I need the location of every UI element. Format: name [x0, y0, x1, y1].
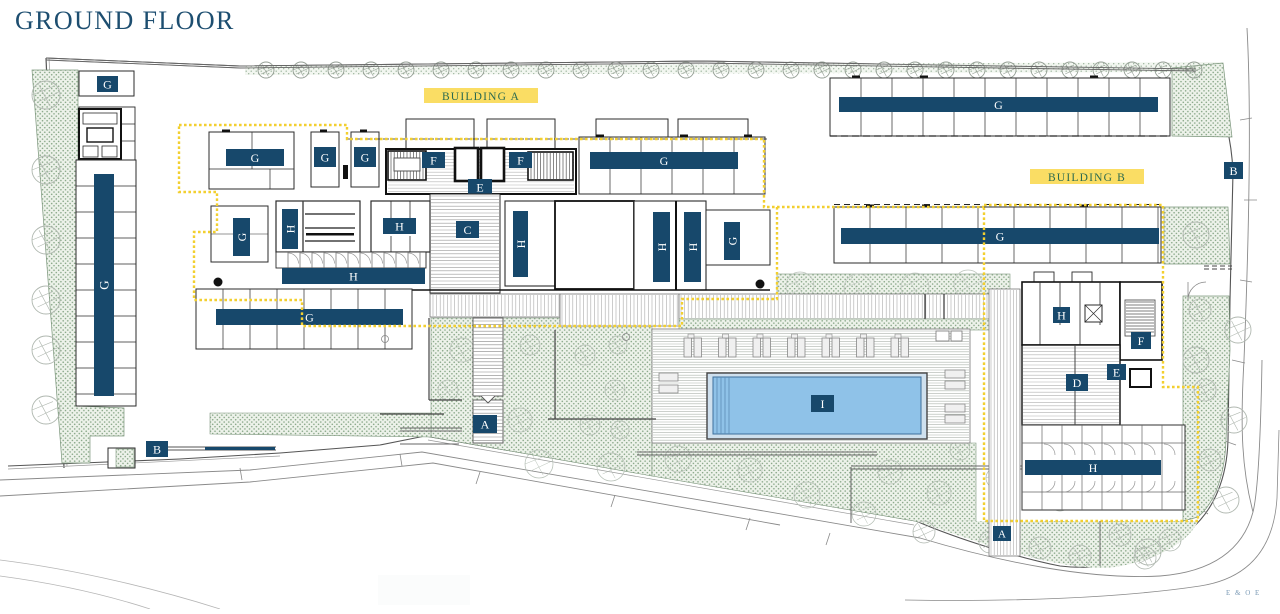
svg-text:G: G — [361, 150, 370, 164]
svg-text:G: G — [725, 236, 739, 245]
svg-text:F: F — [430, 153, 437, 167]
svg-text:BUILDING A: BUILDING A — [442, 91, 520, 103]
svg-text:H: H — [655, 242, 669, 251]
svg-text:D: D — [1073, 376, 1082, 390]
svg-text:F: F — [1138, 334, 1145, 348]
svg-text:G: G — [235, 232, 249, 241]
svg-text:G: G — [996, 229, 1005, 243]
svg-text:H: H — [395, 219, 404, 233]
svg-text:H: H — [283, 224, 297, 233]
svg-text:G: G — [305, 310, 314, 324]
svg-text:H: H — [514, 239, 528, 248]
svg-text:BUILDING B: BUILDING B — [1048, 172, 1126, 184]
svg-text:E: E — [1113, 365, 1120, 379]
svg-text:G: G — [321, 150, 330, 164]
svg-text:C: C — [463, 223, 471, 237]
svg-text:F: F — [517, 153, 524, 167]
svg-text:G: G — [103, 77, 112, 91]
svg-text:A: A — [998, 529, 1006, 541]
svg-text:E: E — [476, 180, 483, 194]
svg-text:G: G — [994, 98, 1003, 112]
svg-text:G: G — [97, 280, 112, 289]
svg-text:H: H — [686, 242, 700, 251]
svg-text:H: H — [349, 269, 358, 283]
svg-text:B: B — [153, 442, 161, 456]
svg-text:E & O E: E & O E — [1226, 589, 1261, 597]
svg-text:G: G — [660, 154, 669, 168]
svg-text:B: B — [1229, 164, 1237, 178]
svg-text:H: H — [1089, 461, 1098, 475]
svg-text:I: I — [821, 397, 825, 411]
svg-text:A: A — [481, 417, 490, 431]
svg-text:H: H — [1057, 308, 1066, 322]
svg-text:G: G — [251, 151, 260, 165]
svg-text:GROUND FLOOR: GROUND FLOOR — [15, 6, 235, 35]
